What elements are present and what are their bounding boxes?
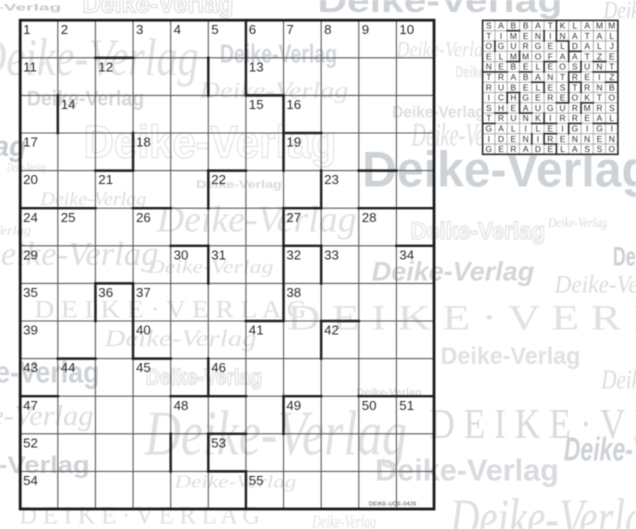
svg-text:54: 54 [23, 473, 38, 488]
svg-text:L: L [536, 124, 541, 134]
svg-text:B: B [511, 21, 517, 31]
svg-text:43: 43 [23, 360, 38, 375]
svg-text:E: E [511, 103, 517, 113]
svg-text:T: T [609, 62, 614, 72]
svg-text:R: R [560, 113, 566, 123]
svg-text:6: 6 [249, 22, 256, 37]
svg-text:22: 22 [211, 172, 226, 187]
svg-text:A: A [572, 144, 578, 154]
svg-text:L: L [609, 31, 614, 41]
svg-text:R: R [523, 41, 529, 51]
svg-text:S: S [584, 144, 590, 154]
svg-text:A: A [597, 31, 603, 41]
svg-text:Z: Z [597, 51, 602, 61]
svg-text:N: N [486, 62, 492, 72]
svg-text:K: K [560, 21, 566, 31]
svg-text:R: R [572, 72, 578, 82]
svg-text:F: F [548, 51, 553, 61]
svg-text:49: 49 [286, 398, 301, 413]
svg-text:1: 1 [23, 22, 30, 37]
svg-text:37: 37 [136, 285, 151, 300]
svg-text:L: L [536, 62, 541, 72]
svg-text:39: 39 [23, 323, 38, 338]
svg-text:T: T [560, 72, 565, 82]
svg-text:U: U [560, 103, 566, 113]
svg-text:R: R [572, 113, 578, 123]
svg-text:50: 50 [362, 398, 377, 413]
svg-text:G: G [535, 41, 542, 51]
svg-text:33: 33 [324, 247, 339, 262]
svg-text:O: O [535, 51, 542, 61]
svg-text:U: U [535, 103, 541, 113]
svg-text:27: 27 [286, 210, 301, 225]
svg-text:16: 16 [286, 97, 301, 112]
svg-text:44: 44 [61, 360, 76, 375]
svg-text:E: E [511, 134, 517, 144]
svg-text:T: T [486, 72, 491, 82]
svg-text:L: L [560, 41, 565, 51]
svg-text:A: A [511, 72, 517, 82]
svg-text:M: M [596, 21, 603, 31]
svg-text:L: L [499, 51, 504, 61]
svg-text:A: A [535, 72, 541, 82]
svg-text:9: 9 [362, 22, 369, 37]
svg-text:D: D [535, 144, 541, 154]
svg-text:26: 26 [136, 210, 151, 225]
svg-text:25: 25 [61, 210, 76, 225]
svg-text:R: R [510, 144, 516, 154]
svg-text:S: S [486, 21, 492, 31]
svg-text:E: E [584, 72, 590, 82]
svg-text:U: U [510, 113, 516, 123]
svg-text:R: R [596, 103, 602, 113]
svg-text:E: E [560, 93, 566, 103]
svg-text:Deike-Verlag: Deike-Verlag [449, 487, 636, 529]
svg-text:E: E [547, 41, 553, 51]
svg-text:B: B [511, 62, 517, 72]
svg-text:N: N [572, 134, 578, 144]
svg-text:E: E [535, 93, 541, 103]
svg-text:38: 38 [286, 285, 301, 300]
svg-text:H: H [510, 93, 516, 103]
svg-text:E: E [498, 144, 504, 154]
svg-text:M: M [510, 31, 517, 41]
svg-text:R: R [498, 113, 504, 123]
svg-text:I: I [500, 31, 502, 41]
svg-text:E: E [547, 144, 553, 154]
svg-text:I: I [488, 93, 490, 103]
svg-text:G: G [498, 41, 505, 51]
svg-text:3: 3 [136, 22, 143, 37]
svg-text:B: B [511, 82, 517, 92]
svg-text:I: I [561, 124, 563, 134]
svg-text:U: U [584, 62, 590, 72]
svg-text:N: N [560, 31, 566, 41]
svg-text:D: D [572, 41, 578, 51]
svg-text:A: A [597, 113, 603, 123]
svg-text:G: G [485, 124, 492, 134]
svg-text:55: 55 [249, 473, 264, 488]
svg-text:E: E [547, 62, 553, 72]
svg-text:O: O [608, 93, 615, 103]
svg-text:L: L [597, 41, 602, 51]
svg-text:T: T [486, 113, 491, 123]
svg-text:T: T [597, 93, 602, 103]
svg-text:I: I [549, 31, 551, 41]
svg-text:U: U [510, 41, 516, 51]
svg-text:45: 45 [136, 360, 151, 375]
svg-text:ike-Verlag: ike-Verlag [0, 2, 61, 13]
svg-text:4: 4 [174, 22, 181, 37]
svg-text:Deike: Deike [601, 365, 636, 395]
svg-text:C: C [498, 93, 504, 103]
svg-text:Z: Z [609, 72, 614, 82]
svg-text:O: O [572, 93, 579, 103]
svg-text:E: E [597, 134, 603, 144]
svg-text:R: R [498, 72, 504, 82]
svg-text:18: 18 [136, 135, 151, 150]
svg-text:T: T [585, 51, 590, 61]
svg-text:S: S [597, 144, 603, 154]
svg-text:O: O [485, 41, 492, 51]
svg-text:E: E [523, 62, 529, 72]
svg-text:41: 41 [249, 323, 264, 338]
svg-text:T: T [572, 82, 577, 92]
svg-text:S: S [486, 103, 492, 113]
svg-text:A: A [584, 21, 590, 31]
svg-text:29: 29 [23, 247, 38, 262]
svg-text:G: G [485, 144, 492, 154]
svg-text:A: A [523, 103, 529, 113]
svg-text:K: K [584, 93, 590, 103]
svg-text:13: 13 [249, 59, 264, 74]
svg-text:B: B [523, 21, 529, 31]
svg-text:34: 34 [399, 247, 414, 262]
svg-text:21: 21 [98, 172, 113, 187]
svg-text:M: M [522, 51, 529, 61]
svg-text:20: 20 [23, 172, 38, 187]
svg-text:N: N [523, 113, 529, 123]
svg-text:A: A [523, 144, 529, 154]
svg-text:28: 28 [362, 210, 377, 225]
svg-text:47: 47 [23, 398, 38, 413]
svg-text:A: A [498, 21, 504, 31]
svg-text:E: E [523, 31, 529, 41]
svg-text:19: 19 [286, 135, 301, 150]
svg-text:42: 42 [324, 323, 339, 338]
svg-text:H: H [498, 103, 504, 113]
svg-text:D: D [498, 134, 504, 144]
svg-text:L: L [560, 144, 565, 154]
svg-text:A: A [560, 51, 566, 61]
svg-text:Deike-Ver: Deike-Ver [554, 271, 636, 299]
svg-text:A: A [572, 31, 578, 41]
svg-text:5: 5 [211, 22, 218, 37]
svg-text:M: M [584, 103, 591, 113]
svg-text:E: E [486, 51, 492, 61]
svg-text:51: 51 [399, 398, 414, 413]
svg-text:36: 36 [98, 285, 113, 300]
svg-text:L: L [536, 82, 541, 92]
svg-text:N: N [596, 62, 602, 72]
svg-text:Deike-Verlag: Deike-Verlag [547, 215, 607, 230]
svg-text:N: N [523, 134, 529, 144]
svg-text:40: 40 [136, 323, 151, 338]
svg-text:T: T [486, 31, 491, 41]
svg-text:A: A [535, 21, 541, 31]
svg-text:10: 10 [399, 22, 414, 37]
svg-text:T: T [548, 21, 553, 31]
svg-text:N: N [596, 82, 602, 92]
svg-text:35: 35 [23, 285, 38, 300]
svg-text:S: S [572, 62, 578, 72]
svg-text:Deike-V: Deike-V [564, 431, 636, 468]
svg-text:24: 24 [23, 210, 38, 225]
svg-text:L: L [573, 21, 578, 31]
svg-text:E: E [547, 82, 553, 92]
svg-text:7: 7 [286, 22, 293, 37]
svg-text:B: B [523, 72, 529, 82]
svg-text:E: E [523, 82, 529, 92]
svg-text:A: A [584, 41, 590, 51]
svg-text:48: 48 [174, 398, 189, 413]
svg-text:U: U [498, 82, 504, 92]
svg-text:15: 15 [249, 97, 264, 112]
svg-text:R: R [584, 82, 590, 92]
svg-text:S: S [609, 103, 615, 113]
svg-text:L: L [609, 113, 614, 123]
svg-text:Deike: Deike [613, 241, 636, 272]
svg-text:14: 14 [61, 97, 76, 112]
svg-text:31: 31 [211, 247, 226, 262]
svg-text:R: R [547, 134, 553, 144]
svg-text:J: J [610, 41, 614, 51]
svg-text:46: 46 [211, 360, 226, 375]
svg-text:I: I [598, 72, 600, 82]
svg-text:17: 17 [23, 135, 38, 150]
svg-text:L: L [511, 124, 516, 134]
svg-text:30: 30 [174, 247, 189, 262]
svg-text:8: 8 [324, 22, 331, 37]
svg-text:N: N [584, 134, 590, 144]
svg-text:G: G [572, 124, 579, 134]
svg-text:E: E [584, 113, 590, 123]
svg-text:N: N [535, 31, 541, 41]
svg-text:R: R [547, 93, 553, 103]
svg-text:O: O [559, 62, 566, 72]
svg-text:E: E [547, 124, 553, 134]
svg-text:I: I [549, 113, 551, 123]
svg-text:Deike-Verlag: Deike-Verlag [441, 342, 581, 370]
svg-text:E: E [609, 51, 615, 61]
svg-text:N: N [547, 72, 553, 82]
svg-text:M: M [510, 51, 517, 61]
svg-text:DEIKE-UDE-0426: DEIKE-UDE-0426 [369, 502, 417, 508]
svg-text:B: B [609, 82, 615, 92]
svg-text:G: G [522, 93, 529, 103]
svg-text:K: K [535, 113, 541, 123]
svg-text:23: 23 [324, 172, 339, 187]
svg-text:11: 11 [23, 59, 37, 74]
svg-text:G: G [596, 124, 603, 134]
svg-text:I: I [611, 124, 613, 134]
svg-text:2: 2 [61, 22, 68, 37]
svg-text:A: A [572, 51, 578, 61]
svg-text:O: O [608, 144, 615, 154]
svg-text:32: 32 [286, 247, 301, 262]
svg-text:12: 12 [98, 59, 113, 74]
svg-text:N: N [609, 134, 615, 144]
svg-text:52: 52 [23, 435, 38, 450]
svg-text:I: I [524, 124, 526, 134]
svg-text:S: S [560, 82, 566, 92]
svg-text:A: A [498, 124, 504, 134]
svg-text:I: I [488, 134, 490, 144]
svg-text:G: G [547, 103, 554, 113]
svg-text:I: I [586, 124, 588, 134]
svg-text:I: I [537, 134, 539, 144]
svg-text:R: R [572, 103, 578, 113]
svg-text:E: E [498, 62, 504, 72]
svg-text:R: R [486, 82, 492, 92]
svg-text:M: M [608, 21, 615, 31]
svg-text:E: E [560, 134, 566, 144]
svg-text:53: 53 [211, 435, 226, 450]
svg-text:T: T [585, 31, 590, 41]
